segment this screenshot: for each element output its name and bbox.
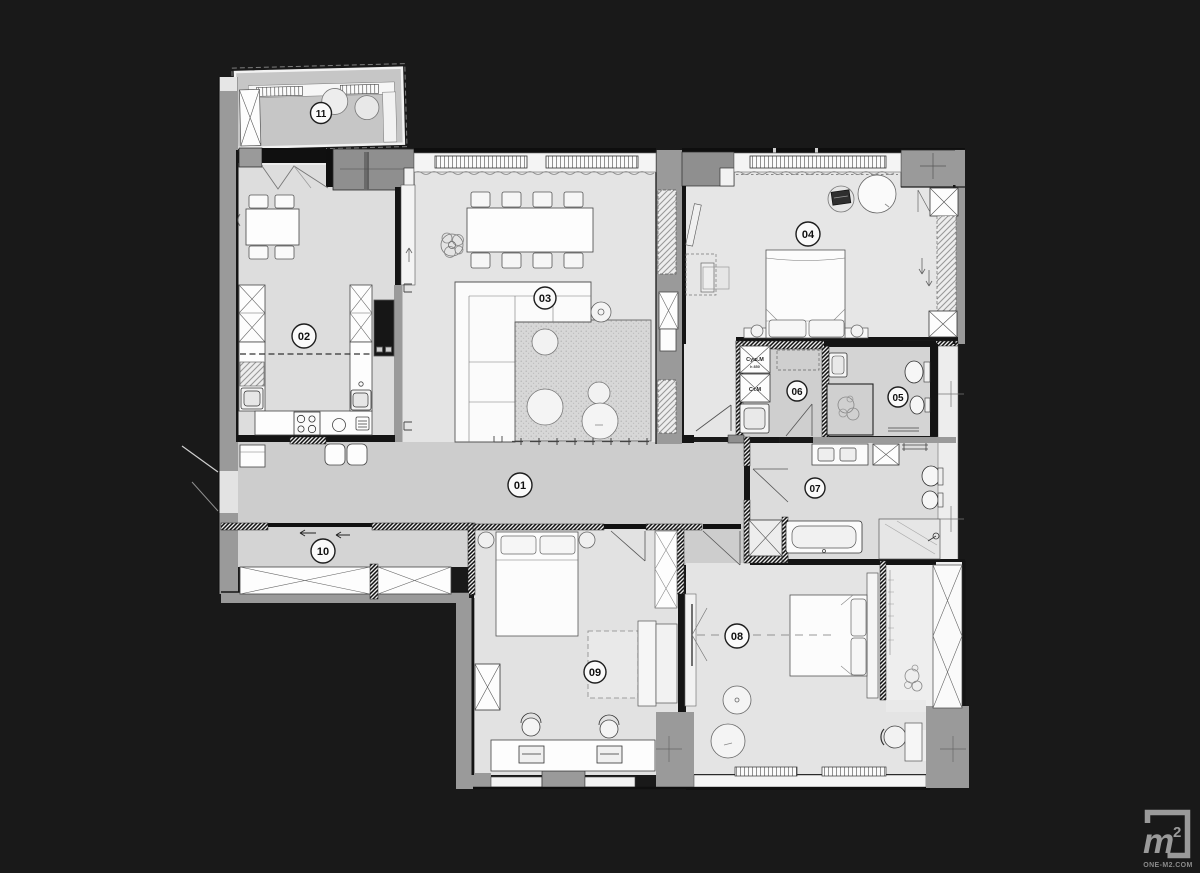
svg-text:07: 07 <box>809 484 821 495</box>
svg-text:06: 06 <box>791 387 803 398</box>
svg-text:03: 03 <box>539 293 551 305</box>
svg-text:10: 10 <box>317 546 329 558</box>
svg-text:2: 2 <box>1173 824 1181 841</box>
svg-text:01: 01 <box>514 480 526 492</box>
svg-text:11: 11 <box>316 109 327 120</box>
svg-text:09: 09 <box>589 667 601 679</box>
svg-text:h 850: h 850 <box>750 365 760 369</box>
svg-text:ONE-M2.COM: ONE-M2.COM <box>1143 862 1193 869</box>
svg-text:05: 05 <box>892 393 904 404</box>
svg-text:04: 04 <box>802 229 815 241</box>
svg-text:02: 02 <box>298 331 310 343</box>
svg-text:m: m <box>1143 822 1174 861</box>
svg-text:Суш.М: Суш.М <box>746 357 764 363</box>
svg-text:Ст.М: Ст.М <box>749 387 762 393</box>
svg-text:08: 08 <box>731 631 743 643</box>
